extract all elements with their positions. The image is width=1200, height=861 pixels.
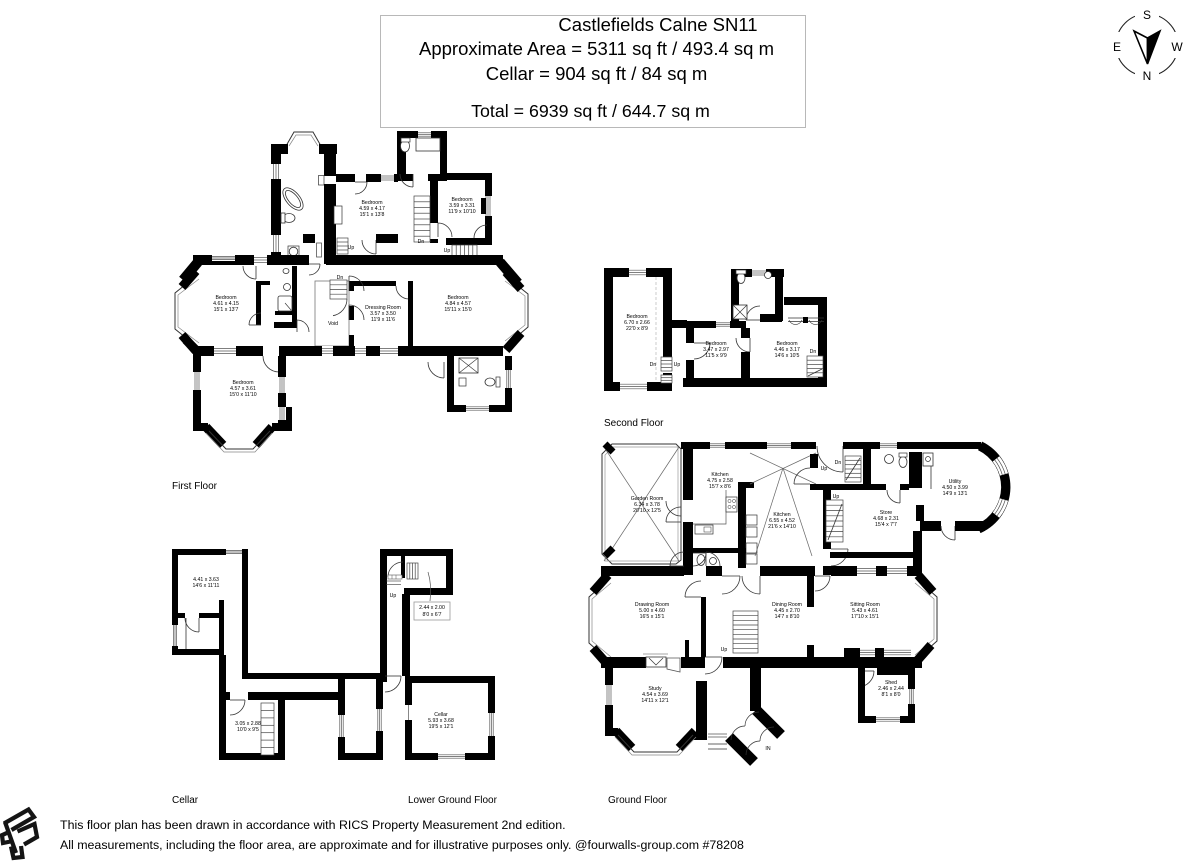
svg-text:4.68 x 2.31: 4.68 x 2.31 xyxy=(873,516,899,522)
svg-text:Utility: Utility xyxy=(949,479,962,485)
svg-text:Shed: Shed xyxy=(885,680,897,686)
svg-text:14'6 x 11'11: 14'6 x 11'11 xyxy=(193,583,220,589)
svg-text:IN: IN xyxy=(765,746,770,752)
svg-text:2.44 x 2.00: 2.44 x 2.00 xyxy=(419,605,445,611)
svg-text:3.57 x 3.50: 3.57 x 3.50 xyxy=(370,311,396,317)
svg-text:4.54 x 3.69: 4.54 x 3.69 xyxy=(642,692,668,698)
svg-text:Bedroom: Bedroom xyxy=(232,380,253,386)
svg-text:3.05 x 2.88: 3.05 x 2.88 xyxy=(235,721,261,727)
svg-text:17'10 x 15'1: 17'10 x 15'1 xyxy=(851,614,879,620)
svg-text:Void: Void xyxy=(328,321,338,327)
svg-text:22'0 x 8'9: 22'0 x 8'9 xyxy=(626,326,648,332)
svg-text:15'1 x 13'8: 15'1 x 13'8 xyxy=(360,212,385,218)
svg-text:Drawing Room: Drawing Room xyxy=(635,602,669,608)
svg-text:11'9 x 11'6: 11'9 x 11'6 xyxy=(371,317,395,323)
svg-text:4.75 x 2.58: 4.75 x 2.58 xyxy=(707,478,733,484)
svg-text:Garden Room: Garden Room xyxy=(631,496,664,502)
svg-text:6.55 x 4.52: 6.55 x 4.52 xyxy=(769,518,795,524)
svg-text:14'9 x 13'1: 14'9 x 13'1 xyxy=(943,491,968,497)
svg-text:15'11 x 15'0: 15'11 x 15'0 xyxy=(444,307,471,313)
svg-text:Dressing Room: Dressing Room xyxy=(365,305,401,311)
svg-text:Ground Floor: Ground Floor xyxy=(608,795,668,806)
svg-text:10'0 x 9'5: 10'0 x 9'5 xyxy=(237,727,259,733)
svg-text:15'7 x 8'6: 15'7 x 8'6 xyxy=(709,484,731,490)
svg-text:5.43 x 4.61: 5.43 x 4.61 xyxy=(852,608,878,614)
svg-text:Study: Study xyxy=(648,686,662,692)
svg-text:19'5 x 12'1: 19'5 x 12'1 xyxy=(429,724,454,730)
svg-text:Bedroom: Bedroom xyxy=(215,295,236,301)
svg-text:4.57 x 3.61: 4.57 x 3.61 xyxy=(230,386,256,392)
svg-text:Up: Up xyxy=(444,248,451,254)
svg-text:4.84 x 4.57: 4.84 x 4.57 xyxy=(445,301,471,307)
svg-text:4.61 x 4.15: 4.61 x 4.15 xyxy=(213,301,239,307)
svg-text:Dining Room: Dining Room xyxy=(772,602,802,608)
svg-text:Second Floor: Second Floor xyxy=(604,418,664,429)
svg-text:Cellar: Cellar xyxy=(172,795,199,806)
svg-text:Up: Up xyxy=(390,593,397,599)
svg-text:Up: Up xyxy=(674,362,681,368)
svg-text:8'0 x 6'7: 8'0 x 6'7 xyxy=(423,612,442,618)
svg-text:3.59 x 3.31: 3.59 x 3.31 xyxy=(449,203,475,209)
svg-text:Lower Ground Floor: Lower Ground Floor xyxy=(408,795,498,806)
svg-text:5.00 x 4.60: 5.00 x 4.60 xyxy=(639,608,665,614)
svg-text:Cellar: Cellar xyxy=(434,712,448,718)
svg-text:Store: Store xyxy=(880,510,893,516)
svg-text:14'11 x 12'1: 14'11 x 12'1 xyxy=(641,698,668,704)
svg-text:Bedroom: Bedroom xyxy=(451,197,472,203)
svg-text:Up: Up xyxy=(833,494,840,500)
svg-text:First Floor: First Floor xyxy=(172,481,218,492)
svg-text:Kitchen: Kitchen xyxy=(773,512,790,518)
svg-text:Up: Up xyxy=(721,647,728,653)
svg-text:8'1 x 8'0: 8'1 x 8'0 xyxy=(882,692,901,698)
svg-text:Bedroom: Bedroom xyxy=(361,200,382,206)
svg-text:4.50 x 3.99: 4.50 x 3.99 xyxy=(942,485,968,491)
svg-text:Dn: Dn xyxy=(810,349,817,355)
svg-text:6.34 x 3.78: 6.34 x 3.78 xyxy=(634,502,660,508)
svg-text:Dn: Dn xyxy=(650,362,657,368)
svg-text:6.70 x 2.66: 6.70 x 2.66 xyxy=(624,320,650,326)
svg-text:16'5 x 15'1: 16'5 x 15'1 xyxy=(640,614,665,620)
svg-text:Up: Up xyxy=(821,466,828,472)
svg-text:Up: Up xyxy=(348,245,355,251)
svg-text:Sitting Room: Sitting Room xyxy=(850,602,880,608)
svg-text:4.45 x 2.70: 4.45 x 2.70 xyxy=(774,608,800,614)
svg-text:5.93 x 3.68: 5.93 x 3.68 xyxy=(428,718,454,724)
svg-text:15'0 x 11'10: 15'0 x 11'10 xyxy=(229,392,256,398)
svg-text:Bedroom: Bedroom xyxy=(626,314,647,320)
svg-text:Bedroom: Bedroom xyxy=(705,341,726,347)
svg-text:15'4 x 7'7: 15'4 x 7'7 xyxy=(875,522,897,528)
svg-text:14'6 x 10'5: 14'6 x 10'5 xyxy=(775,353,800,359)
svg-text:21'6 x 14'10: 21'6 x 14'10 xyxy=(768,524,796,530)
svg-text:2.46 x 2.44: 2.46 x 2.44 xyxy=(878,686,904,692)
svg-text:4.46 x 3.17: 4.46 x 3.17 xyxy=(774,347,800,353)
svg-text:11'9 x 10'10: 11'9 x 10'10 xyxy=(448,209,475,215)
svg-text:15'1 x 13'7: 15'1 x 13'7 xyxy=(214,307,239,313)
svg-text:Dn: Dn xyxy=(835,460,842,466)
svg-text:Dn: Dn xyxy=(418,239,425,245)
svg-text:Kitchen: Kitchen xyxy=(711,472,728,478)
svg-text:Bedroom: Bedroom xyxy=(447,295,468,301)
svg-text:4.41 x 3.63: 4.41 x 3.63 xyxy=(193,577,219,583)
svg-text:20'10 x 12'5: 20'10 x 12'5 xyxy=(633,508,661,514)
svg-text:11'5 x 9'9: 11'5 x 9'9 xyxy=(705,353,727,359)
svg-text:Bedroom: Bedroom xyxy=(776,341,797,347)
svg-text:14'7 x 8'10: 14'7 x 8'10 xyxy=(775,614,800,620)
svg-text:4.59 x 4.17: 4.59 x 4.17 xyxy=(359,206,385,212)
svg-text:3.47 x 2.97: 3.47 x 2.97 xyxy=(703,347,729,353)
